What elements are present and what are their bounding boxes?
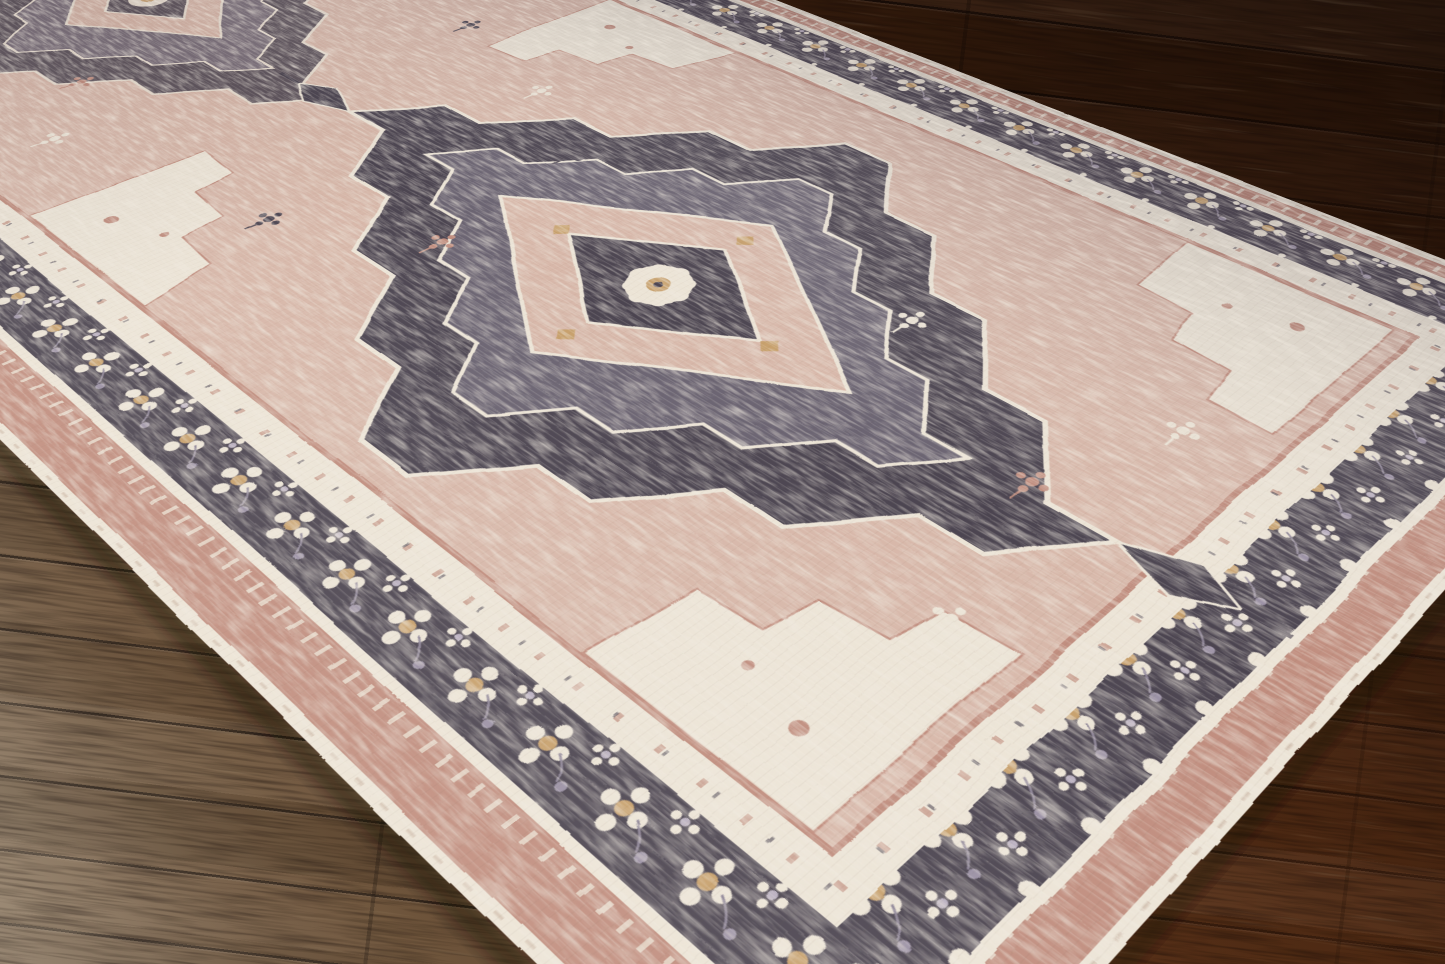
room-scene <box>0 0 1445 964</box>
